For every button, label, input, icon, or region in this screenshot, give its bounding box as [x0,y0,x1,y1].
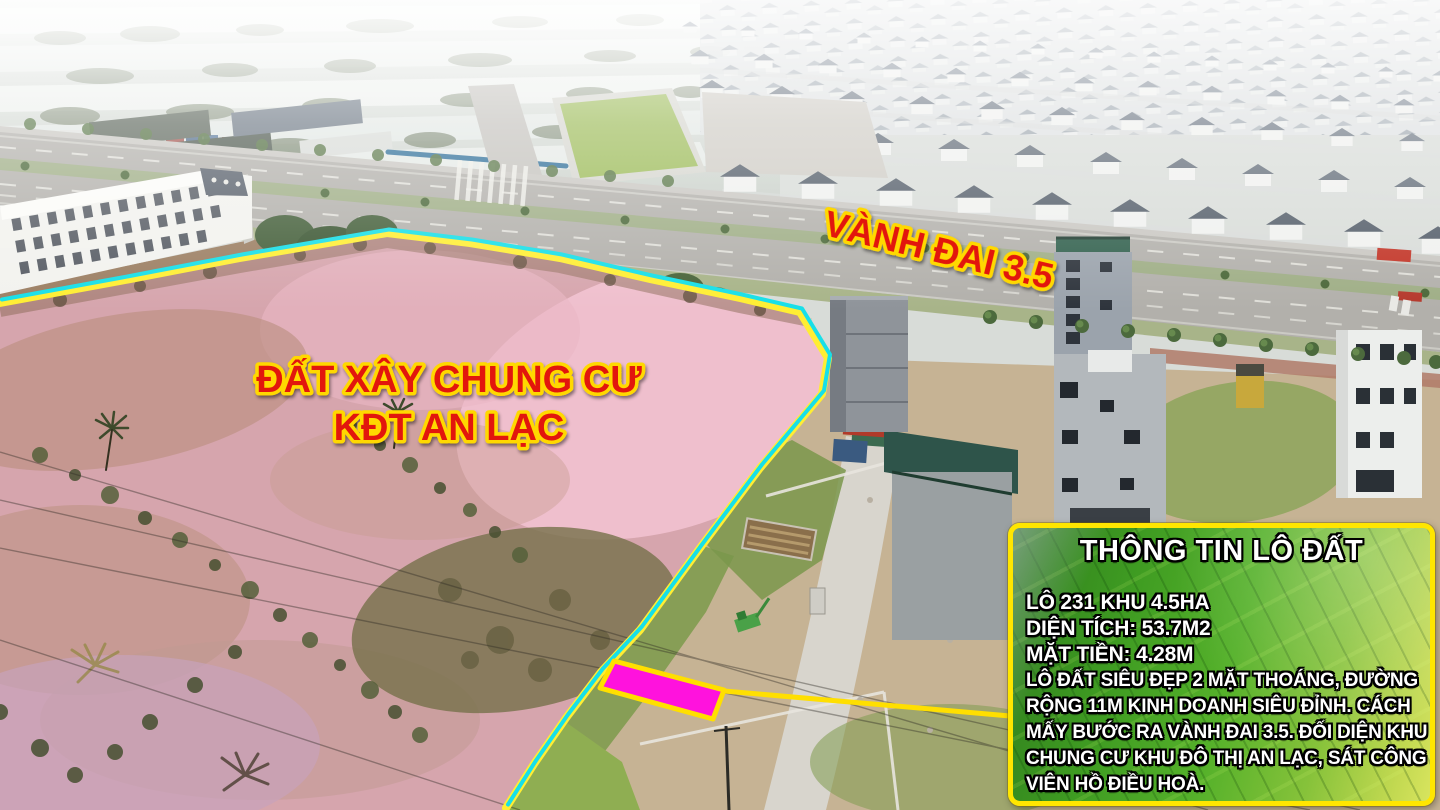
real-estate-ad-image: ĐẤT XÂY CHUNG CƯ KĐT AN LẠC VÀNH ĐAI 3.5… [0,0,1440,810]
info-box-lines: LÔ 231 KHU 4.5HA DIỆN TÍCH: 53.7M2 MẶT T… [1013,590,1430,798]
info-line-desc-4: CHUNG CƯ KHU ĐÔ THỊ AN LẠC, SÁT CÔNG [1026,746,1424,772]
gray-building [830,296,908,432]
info-line-desc-1: LÔ ĐẤT SIÊU ĐẸP 2 MẶT THOÁNG, ĐƯỜNG [1026,668,1424,694]
green-roof-building [884,430,1018,640]
area-label-line1: ĐẤT XÂY CHUNG CƯ [256,357,642,401]
info-box: THÔNG TIN LÔ ĐẤT LÔ 231 KHU 4.5HA DIỆN T… [1008,523,1435,806]
info-line-desc-3: MẤY BƯỚC RA VÀNH ĐAI 3.5. ĐỐI DIỆN KHU [1026,720,1424,746]
info-box-title: THÔNG TIN LÔ ĐẤT [1013,535,1430,568]
haze-overlay [0,0,1440,310]
tall-white-building [1054,350,1166,532]
yellow-kiosk [1236,364,1264,408]
info-line-area: DIỆN TÍCH: 53.7M2 [1026,616,1424,642]
info-line-desc-2: RỘNG 11M KINH DOANH SIÊU ĐỈNH. CÁCH [1026,694,1424,720]
info-line-frontage: MẶT TIỀN: 4.28M [1026,642,1424,668]
truck [810,588,825,614]
info-line-lot: LÔ 231 KHU 4.5HA [1026,590,1424,616]
info-line-desc-5: VIÊN HỒ ĐIỀU HOÀ. [1026,772,1424,798]
area-label-line2: KĐT AN LẠC [334,407,565,449]
